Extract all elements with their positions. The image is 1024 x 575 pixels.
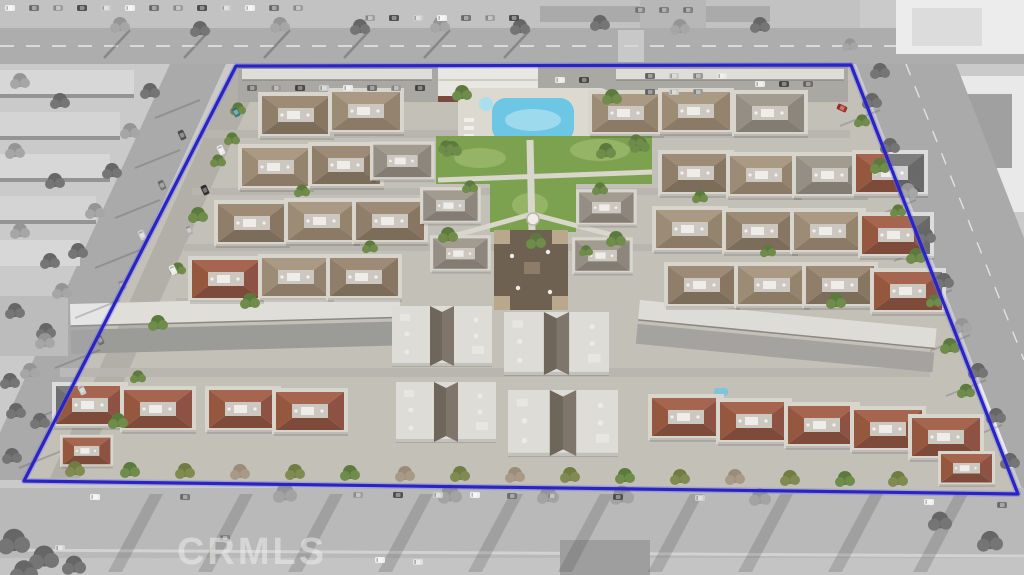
aerial-photo-screenshot: CRMLS bbox=[0, 0, 1024, 575]
aerial-photo: CRMLS bbox=[0, 0, 1024, 575]
crmls-watermark: CRMLS bbox=[177, 531, 327, 573]
